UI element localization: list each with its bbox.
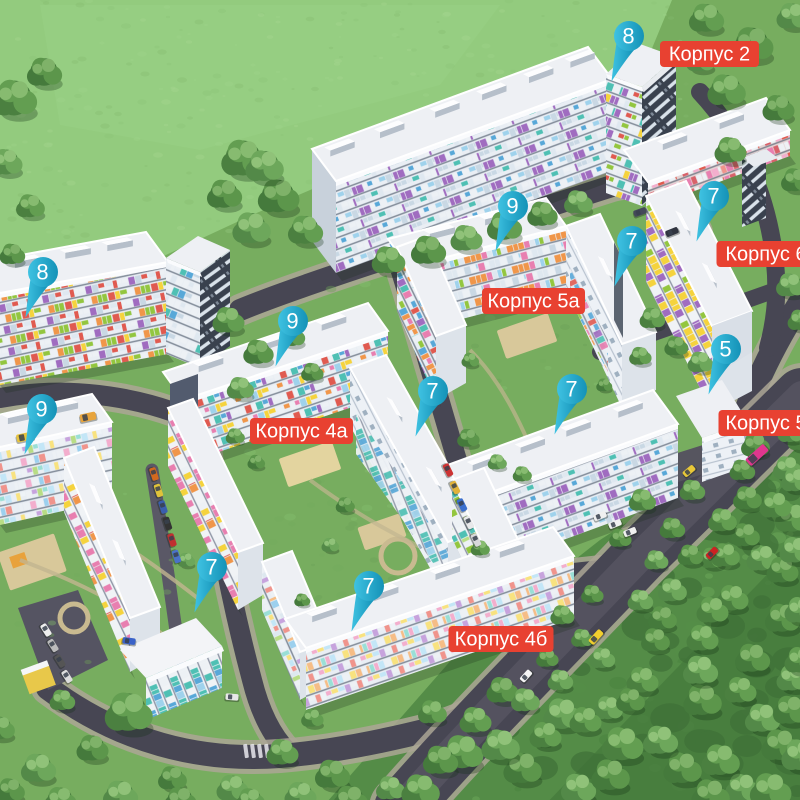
svg-text:5: 5 [719,337,731,362]
svg-text:Корпус 4б: Корпус 4б [455,629,548,651]
svg-text:8: 8 [36,260,48,285]
svg-text:7: 7 [625,229,637,254]
svg-text:7: 7 [565,377,577,402]
svg-text:Корпус 6: Корпус 6 [725,244,800,266]
svg-text:8: 8 [622,24,634,49]
svg-text:Корпус 5: Корпус 5 [725,413,800,435]
svg-text:9: 9 [35,397,47,422]
svg-text:Корпус 5а: Корпус 5а [487,291,580,313]
svg-text:Корпус 2: Корпус 2 [669,44,750,66]
svg-text:Корпус 4а: Корпус 4а [255,421,348,443]
svg-text:9: 9 [286,309,298,334]
svg-text:7: 7 [426,379,438,404]
svg-text:7: 7 [707,184,719,209]
svg-text:7: 7 [205,555,217,580]
svg-text:9: 9 [506,194,518,219]
svg-text:7: 7 [362,574,374,599]
